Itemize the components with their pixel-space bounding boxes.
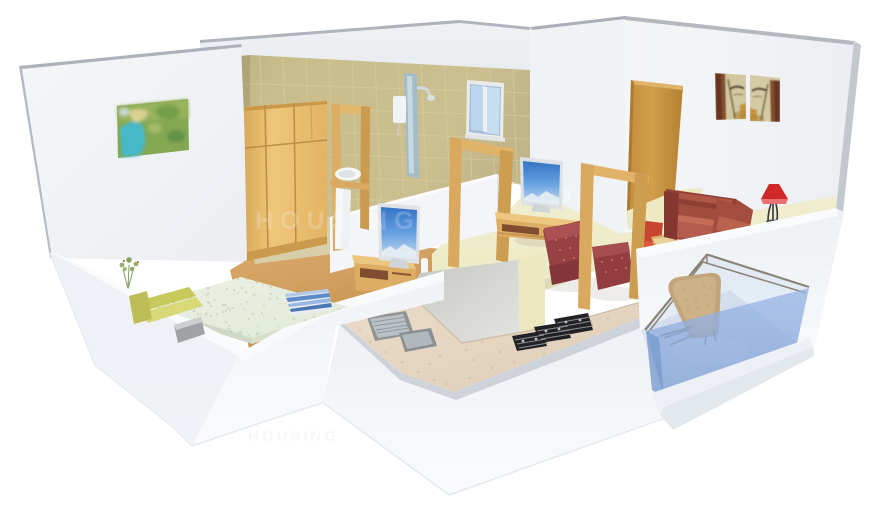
- svg-text:HOUSING: HOUSING: [248, 428, 339, 445]
- svg-text:HOUSING: HOUSING: [255, 207, 421, 235]
